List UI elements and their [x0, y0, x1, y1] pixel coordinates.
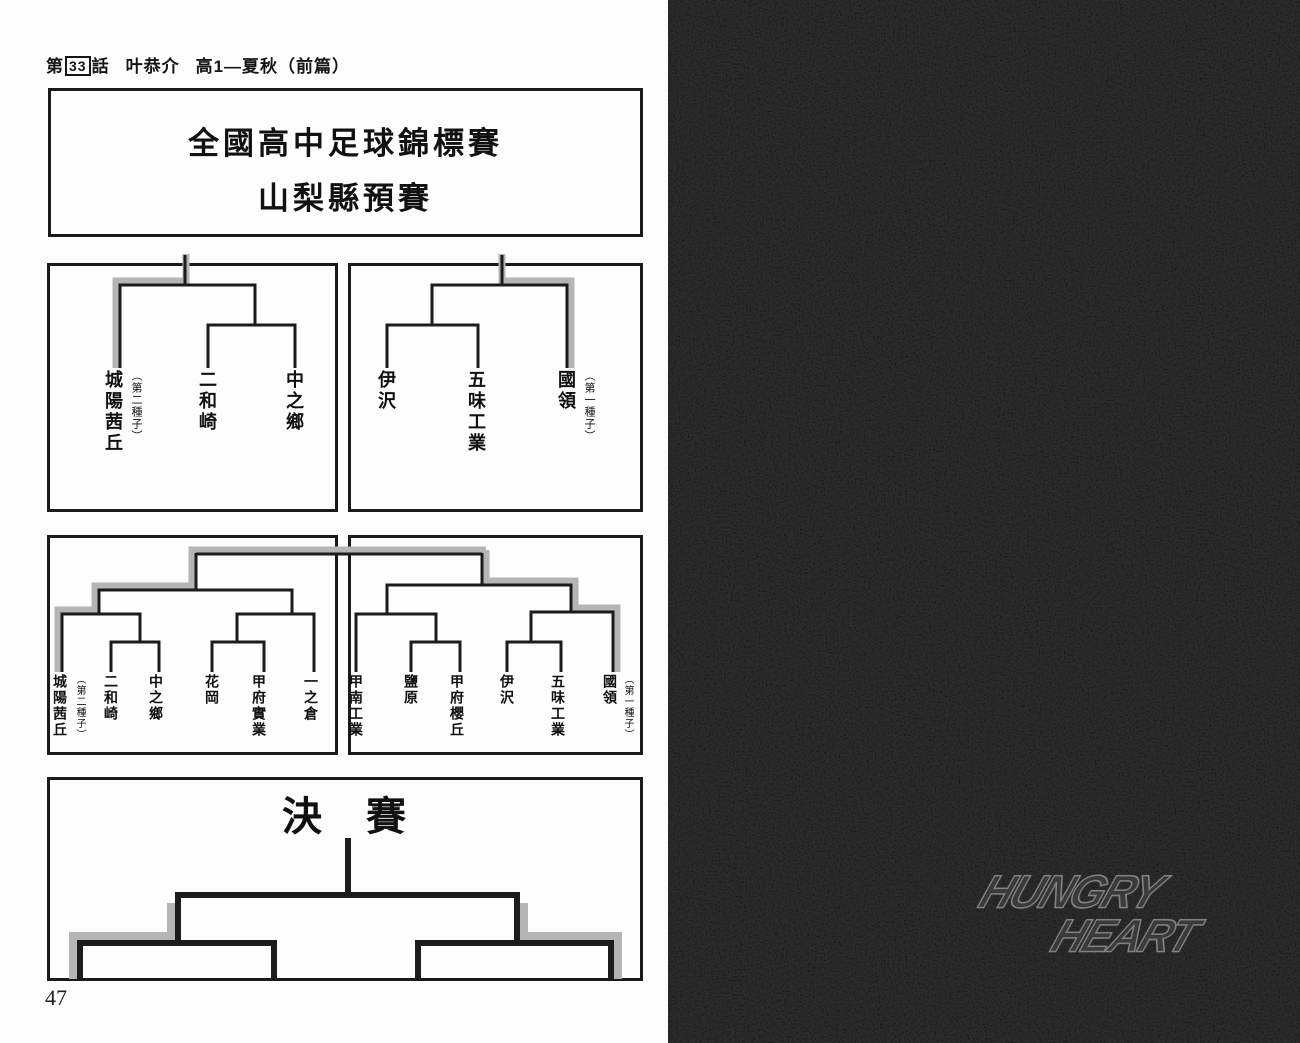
episode-title: 高1—夏秋（前篇） [196, 57, 350, 76]
tournament-title-line1: 全國高中足球錦標賽 [51, 118, 640, 163]
tournament-page: 第33話叶恭介高1—夏秋（前篇） 全國高中足球錦標賽 山梨縣預賽 決 賽 [0, 0, 668, 1043]
seed-label: （第二種子） [74, 674, 84, 740]
chapter-suffix: 話 [92, 57, 110, 76]
team-label: 一之倉 [304, 674, 318, 722]
seed-label: （第一種子） [583, 370, 594, 442]
bracket-box-left-half [47, 535, 338, 755]
team-label: 甲府實業 [252, 674, 266, 738]
team-label: 五味工業 [467, 370, 485, 454]
chapter-prefix: 第 [46, 57, 64, 76]
team-label: 鹽原 [404, 674, 418, 706]
team-label: 花岡 [205, 674, 219, 706]
manga-spread: 第33話叶恭介高1—夏秋（前篇） 全國高中足球錦標賽 山梨縣預賽 決 賽 [0, 0, 1300, 1043]
team-label: 伊沢 [377, 370, 395, 412]
final-label: 決 賽 [47, 784, 643, 842]
team-label: 甲南工業 [349, 674, 363, 738]
team-label: 中之鄉 [285, 370, 303, 433]
team-label: 伊沢 [500, 674, 514, 706]
character-name: 叶恭介 [126, 57, 180, 76]
dark-page: HUNGRY HEART 野 獸 射 手 [668, 0, 1300, 1043]
team-label: 二和崎 [198, 370, 216, 433]
bracket-box-right-half [348, 535, 643, 755]
team-label: 城陽茜丘 [104, 370, 122, 454]
team-label: 國領 [603, 674, 617, 706]
seed-label: （第一種子） [622, 674, 632, 740]
seed-label: （第二種子） [130, 370, 141, 442]
page-number: 47 [45, 985, 67, 1011]
team-label: 中之鄉 [149, 674, 163, 722]
team-label: 二和崎 [104, 674, 118, 722]
team-label: 城陽茜丘 [53, 674, 67, 738]
chapter-number-box: 33 [65, 56, 91, 76]
logo-word-heart: HEART [1044, 911, 1204, 964]
team-label: 五味工業 [551, 674, 565, 738]
chapter-header: 第33話叶恭介高1—夏秋（前篇） [46, 52, 350, 77]
hungry-heart-logo: HUNGRY HEART 野 獸 射 手 [968, 860, 1288, 990]
team-label: 甲府櫻丘 [450, 674, 464, 738]
tournament-title-line2: 山梨縣預賽 [51, 173, 640, 218]
team-label: 國領 [557, 370, 575, 412]
tournament-title-box: 全國高中足球錦標賽 山梨縣預賽 [48, 88, 643, 237]
